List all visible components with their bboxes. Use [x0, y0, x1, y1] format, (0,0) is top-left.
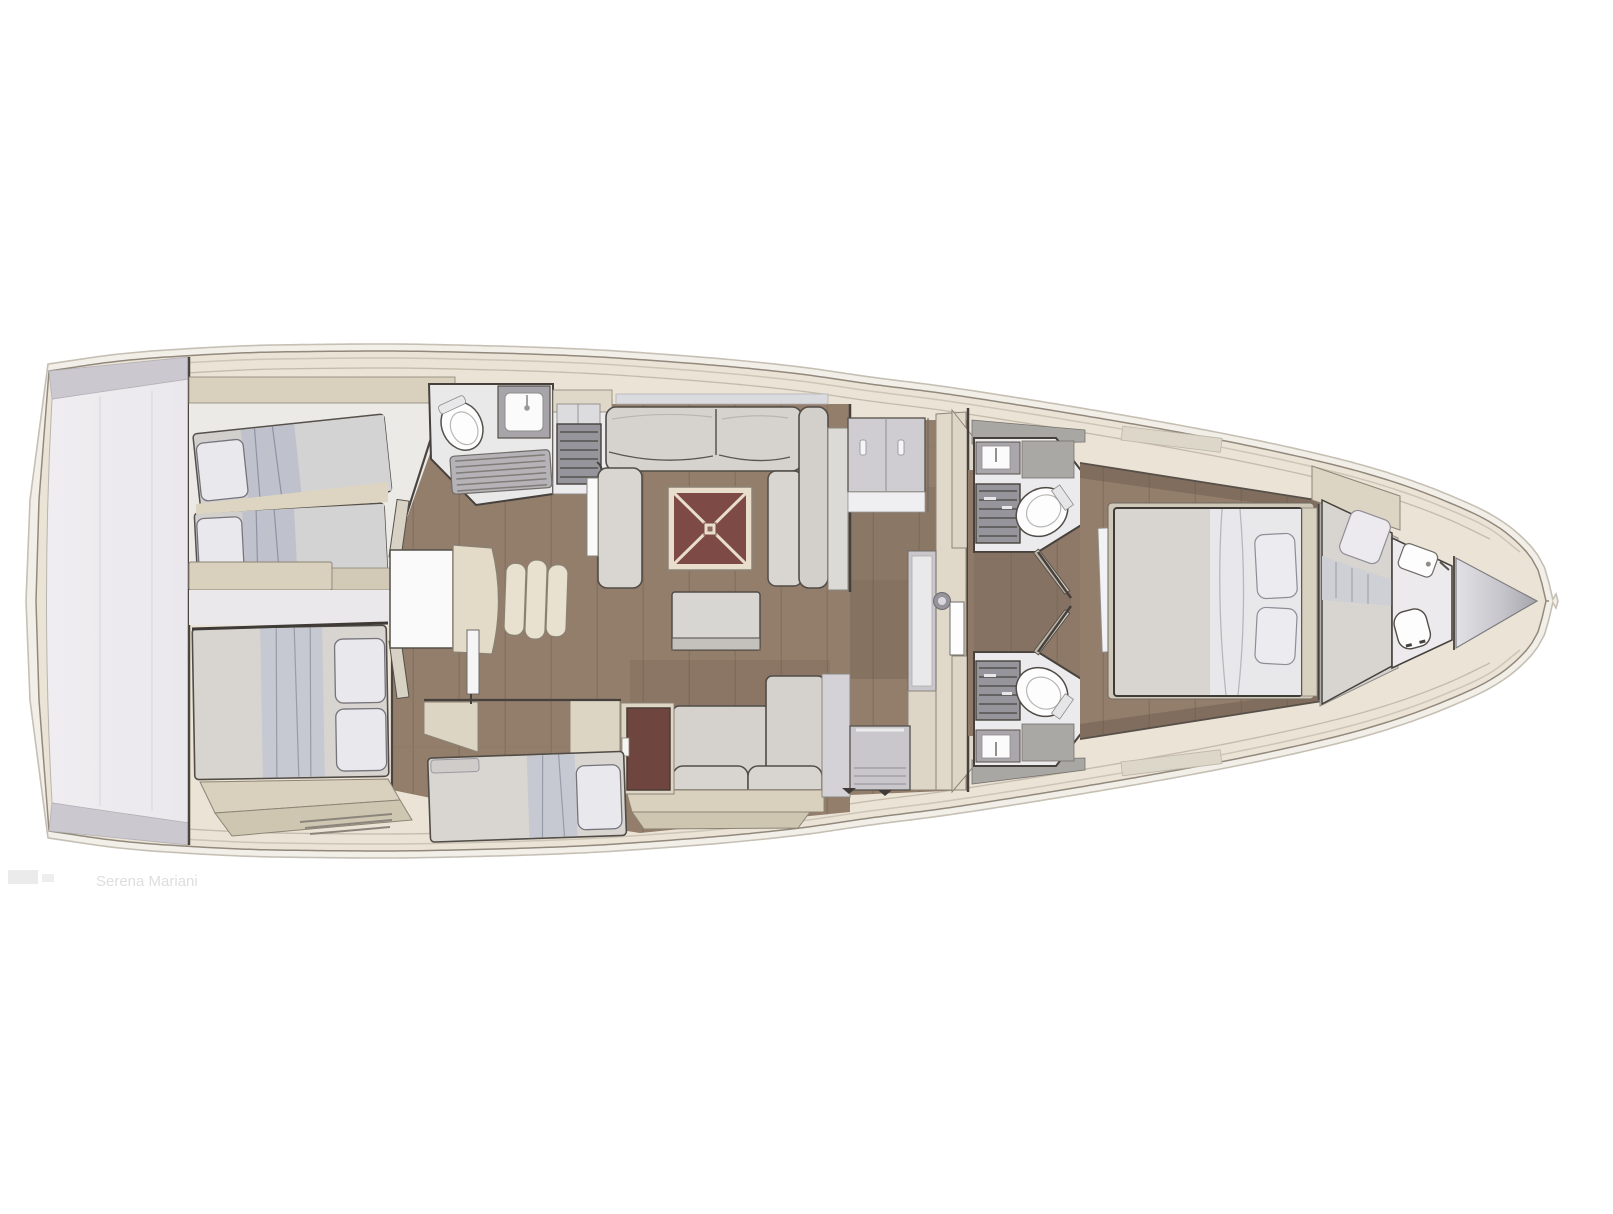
svg-text:Serena Mariani: Serena Mariani — [96, 873, 198, 890]
